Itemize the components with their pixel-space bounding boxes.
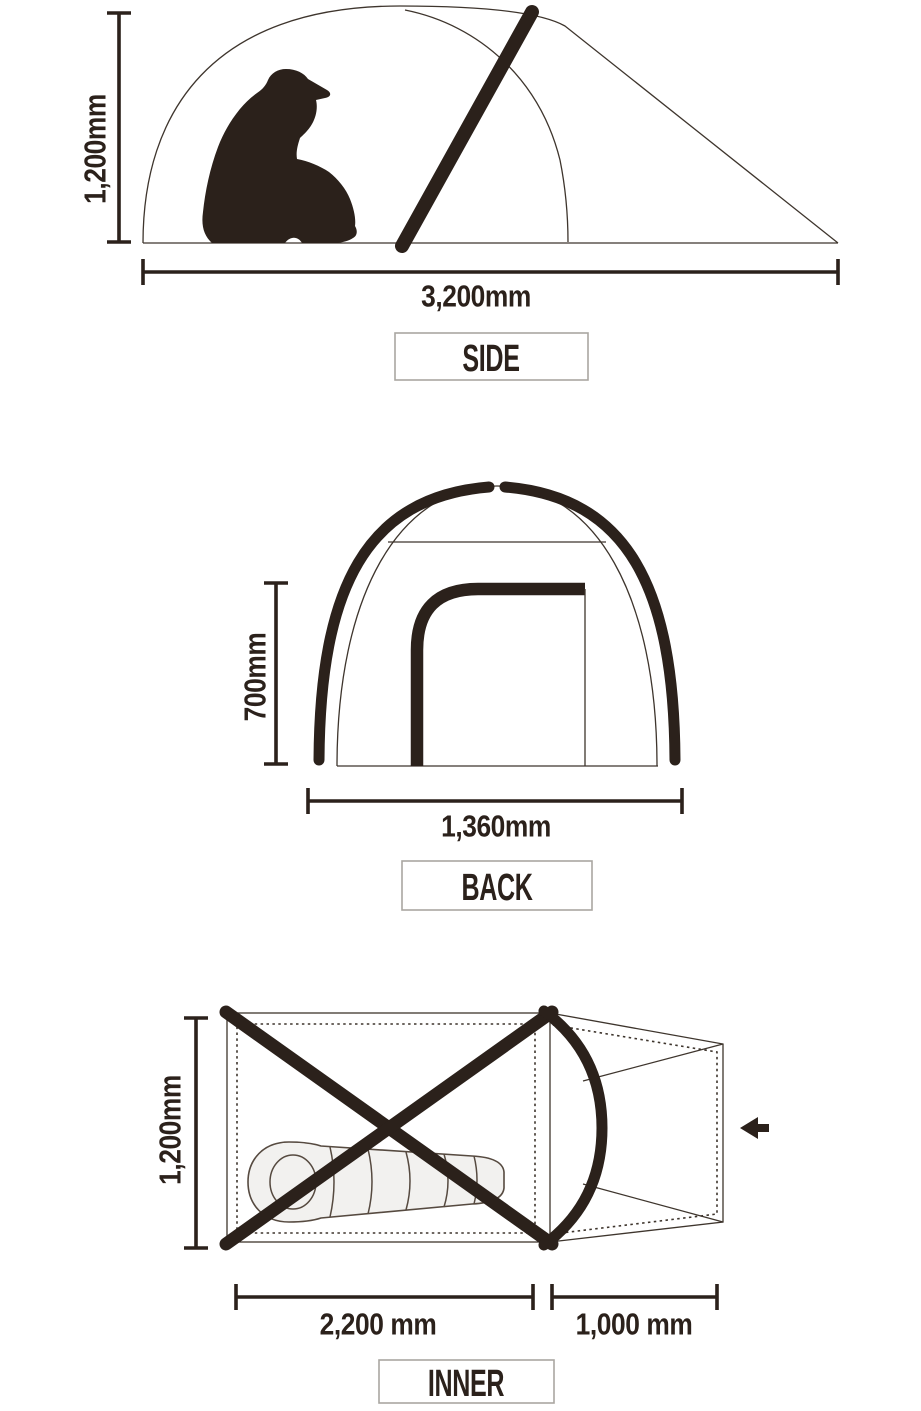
side-pole [402,12,532,246]
vestibule-diagonal-top [583,1044,723,1081]
vestibule-diagonal-bottom [583,1184,723,1222]
tent-spec-diagram: 1,200mm 3,200mm SIDE 700mm 1,360mm BACK [0,0,921,1411]
side-title: SIDE [462,337,519,379]
side-height-dim-label: 1,200mm [79,94,113,204]
back-width-dim-label: 1,360mm [441,810,551,844]
inner-vestibule-dim-line [552,1284,717,1310]
back-door-frame [417,589,585,766]
back-title: BACK [461,866,532,908]
back-height-dim-label: 700mm [239,633,273,722]
inner-height-dim-label: 1,200mm [154,1075,188,1185]
back-view: 700mm 1,360mm BACK [239,486,682,910]
inner-view: 1,200mm 2,200 mm 1,000 mm INNER [154,1011,769,1404]
inner-length-dim-label: 2,200 mm [320,1308,437,1342]
inner-vestibule-dim-label: 1,000 mm [576,1308,693,1342]
side-width-dim-label: 3,200mm [421,280,531,314]
left-arrow-icon [740,1117,769,1139]
person-silhouette-icon [202,69,356,243]
side-view: 1,200mm 3,200mm SIDE [79,6,838,380]
inner-title: INNER [428,1362,505,1404]
inner-door-arc [544,1011,602,1245]
inner-length-dim-line [236,1284,533,1310]
